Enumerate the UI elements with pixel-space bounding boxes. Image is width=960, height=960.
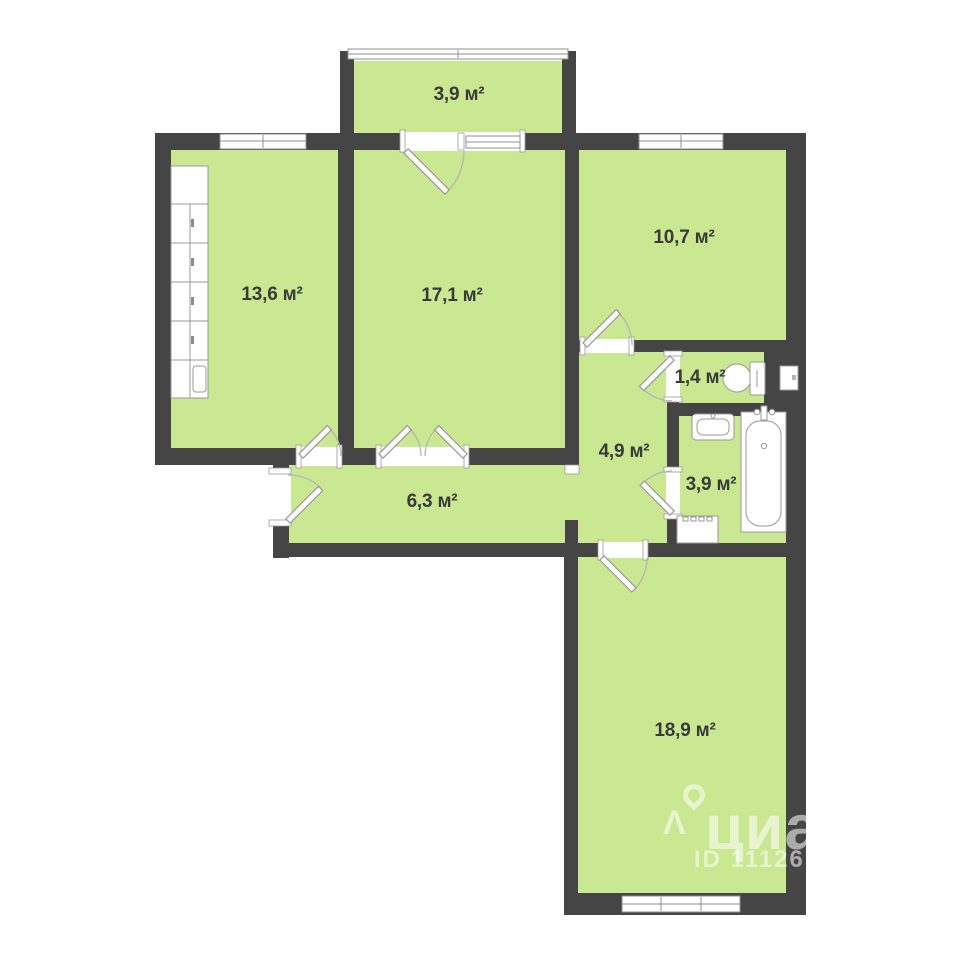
label-corridor: 4,9 м² <box>599 441 650 463</box>
washing-machine-icon <box>677 516 718 543</box>
bathtub-icon <box>741 406 786 532</box>
label-kitchen: 13,6 м² <box>241 284 302 306</box>
label-bedroom: 10,7 м² <box>653 227 714 249</box>
balcony-glazing <box>348 49 568 59</box>
balcony-door-window <box>466 136 520 148</box>
label-living: 17,1 м² <box>421 285 482 307</box>
big-room-window <box>622 896 740 912</box>
kitchen-window <box>220 134 306 149</box>
label-wc: 1,4 м² <box>675 367 726 389</box>
wall-stub <box>565 520 578 543</box>
toilet-icon <box>723 362 765 395</box>
label-big-room: 18,9 м² <box>654 720 715 742</box>
balcony-left-wall <box>340 51 354 133</box>
bedroom-window <box>639 134 723 149</box>
label-balcony: 3,9 м² <box>434 84 485 106</box>
label-bathroom: 3,9 м² <box>686 474 737 496</box>
floor-plan-canvas: 3,9 м² 13,6 м² 17,1 м² 10,7 м² 1,4 м² 4,… <box>0 0 960 960</box>
label-hallway: 6,3 м² <box>407 491 458 513</box>
vent-shaft-icon <box>780 366 798 390</box>
floor-plan-drawing <box>0 0 960 960</box>
sink-icon <box>692 414 734 440</box>
balcony-right-wall <box>562 51 576 133</box>
kitchen-cabinets-icon <box>171 166 208 398</box>
